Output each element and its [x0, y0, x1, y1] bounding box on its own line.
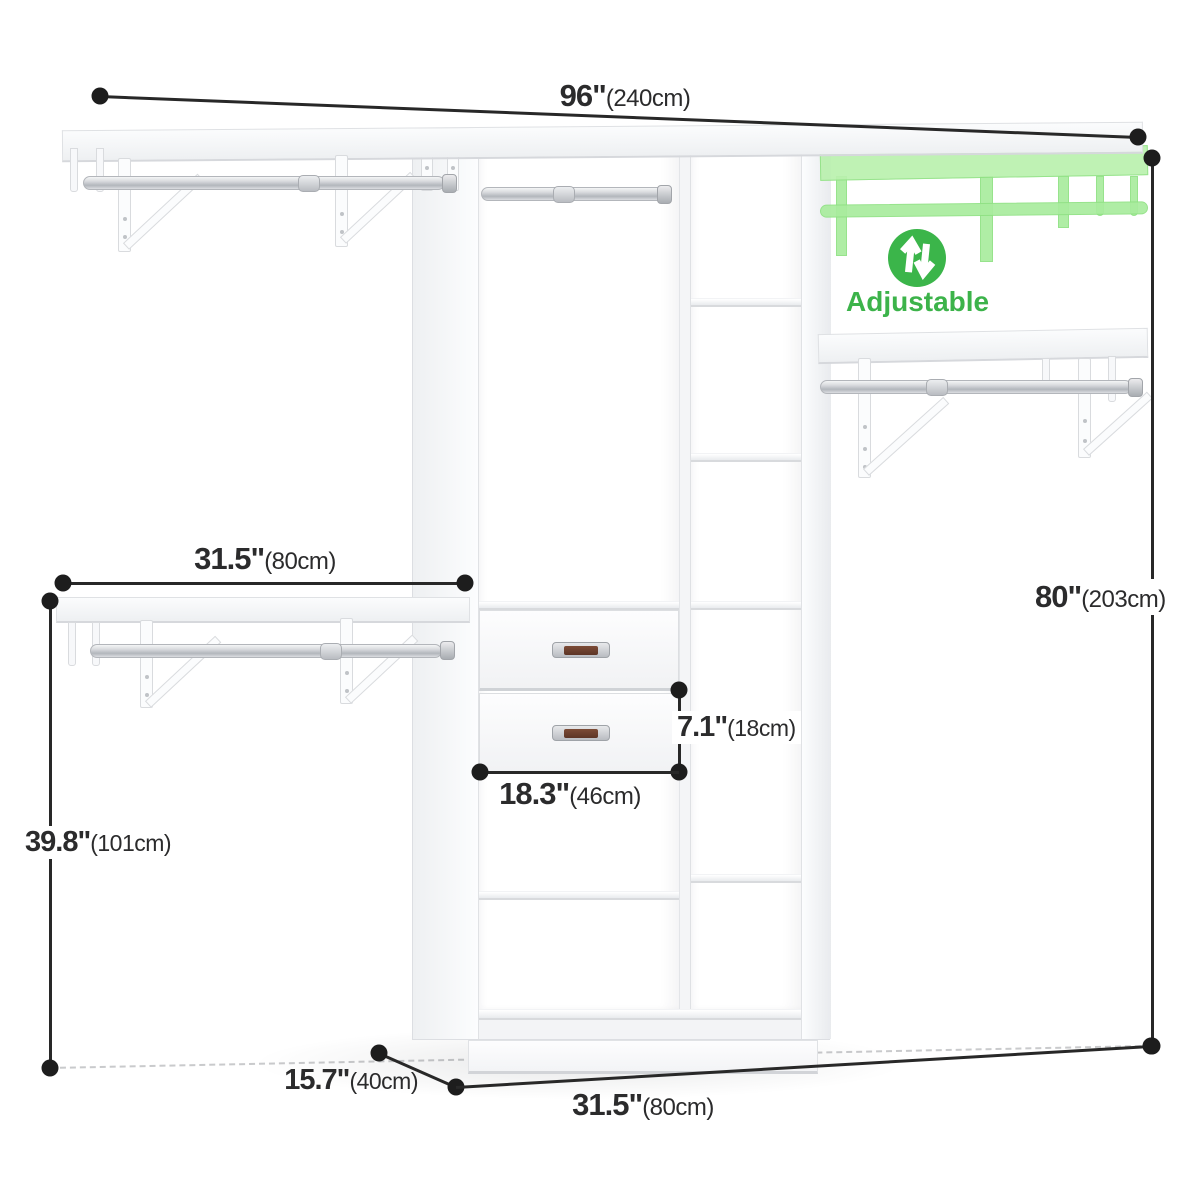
rod-end-cap	[440, 641, 455, 660]
dim-value: 18.3"	[499, 776, 569, 812]
dim-value: 15.7"	[284, 1064, 349, 1097]
dim-endpoint	[1143, 1038, 1160, 1055]
dim-metric: (40cm)	[349, 1068, 418, 1095]
wall-tab	[70, 148, 78, 192]
shelf-board	[691, 601, 801, 610]
dim-metric: (46cm)	[569, 783, 641, 811]
dim-line-drawer-width	[480, 771, 679, 774]
shelf-board	[691, 298, 801, 307]
dim-label-drawer-height: 7.1"(18cm)	[672, 711, 801, 744]
dim-endpoint	[1130, 129, 1147, 146]
dim-label-left-shelf-width: 31.5"(80cm)	[150, 541, 380, 577]
dim-value: 80"	[1035, 579, 1081, 615]
dim-endpoint	[42, 1060, 59, 1077]
rod-end-cap	[442, 174, 457, 193]
dim-value: 7.1"	[677, 711, 727, 744]
drawer-handle	[552, 642, 610, 658]
tower-left-column-cavity	[479, 129, 679, 1009]
closet-dimension-diagram: Adjustable 96"(240cm)	[0, 0, 1200, 1200]
left-top-hanging-rod	[83, 176, 445, 190]
dim-value: 31.5"	[572, 1087, 642, 1123]
shelf-board	[691, 874, 801, 883]
dim-label-right-height: 80"(203cm)	[1030, 579, 1171, 615]
dim-line-left-shelf-width	[63, 582, 465, 585]
rod-telescope-joint	[553, 186, 575, 203]
tower-hanging-rod	[481, 187, 669, 201]
dim-endpoint	[671, 682, 688, 699]
right-hanging-rod	[820, 380, 1132, 394]
wall-tab	[1108, 356, 1116, 402]
drawer-handle-grip	[564, 646, 598, 655]
drawer-lower	[479, 693, 679, 774]
dim-endpoint	[1144, 150, 1161, 167]
adjustable-arrows-icon	[887, 228, 947, 288]
drawer-handle-grip	[564, 729, 598, 738]
drawer-handle	[552, 725, 610, 741]
rod-telescope-joint	[298, 175, 320, 192]
dim-endpoint	[457, 575, 474, 592]
left-lower-hanging-rod	[90, 644, 442, 658]
bracket-brace	[863, 397, 949, 476]
tower-frame	[412, 128, 830, 1040]
dim-metric: (203cm)	[1081, 586, 1166, 614]
rod-end-cap	[1128, 378, 1143, 397]
dim-endpoint	[42, 593, 59, 610]
drawer-upper	[479, 610, 679, 691]
shelf-board	[479, 891, 679, 900]
rod-telescope-joint	[320, 643, 342, 660]
rod-end-cap	[657, 185, 672, 204]
dim-value: 39.8"	[25, 826, 90, 859]
dim-label-depth: 15.7"(40cm)	[258, 1064, 418, 1097]
dim-metric: (80cm)	[642, 1094, 714, 1122]
tower-bottom-board	[479, 1009, 801, 1020]
ghost-bracket	[980, 176, 993, 262]
dim-label-drawer-width: 18.3"(46cm)	[455, 776, 685, 812]
tower-middle-wall	[679, 129, 691, 1009]
dim-value: 31.5"	[194, 541, 264, 577]
shelf-board	[691, 453, 801, 462]
dim-metric: (80cm)	[264, 548, 336, 576]
shelf-bracket	[858, 358, 871, 478]
dim-metric: (101cm)	[90, 830, 171, 857]
adjustable-label: Adjustable	[846, 286, 989, 318]
dim-value: 96"	[560, 78, 606, 114]
dim-endpoint	[55, 575, 72, 592]
bracket-brace	[1083, 392, 1153, 456]
rod-telescope-joint	[926, 379, 948, 396]
dim-metric: (18cm)	[727, 715, 796, 742]
dim-label-top-width: 96"(240cm)	[540, 78, 710, 114]
dim-endpoint	[371, 1045, 388, 1062]
dim-metric: (240cm)	[606, 85, 691, 113]
wall-tab	[68, 622, 76, 666]
dim-label-bottom-width: 31.5"(80cm)	[528, 1087, 758, 1123]
tower-right-wall	[801, 129, 831, 1039]
left-lower-shelf-board	[56, 597, 470, 623]
dim-label-left-height: 39.8"(101cm)	[20, 826, 176, 859]
drawer-top-board	[479, 601, 679, 610]
dim-endpoint	[92, 88, 109, 105]
